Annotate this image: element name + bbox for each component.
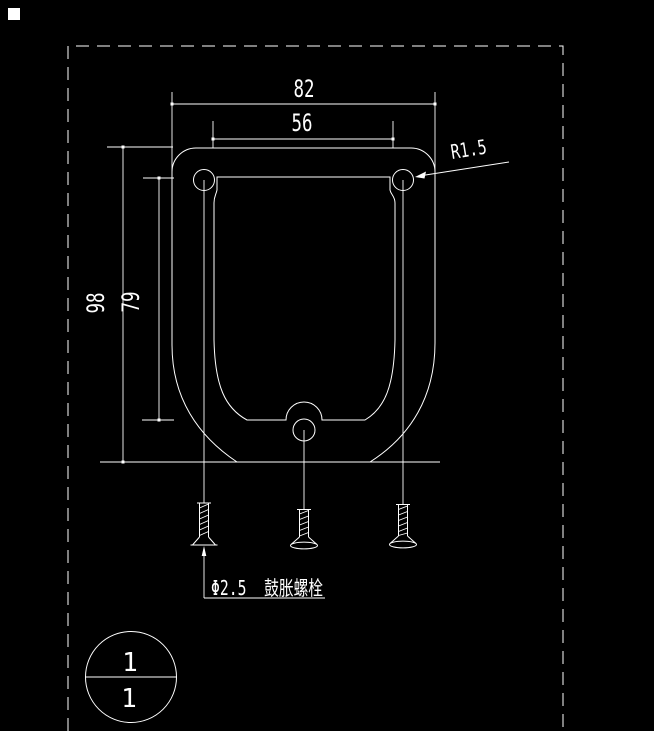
- radius-label-text: R1.5: [449, 135, 488, 164]
- sheet-dashed-border: [68, 46, 563, 731]
- plate-inner-contour: [214, 177, 395, 420]
- plate-outer-contour: [172, 148, 435, 462]
- cad-viewport: { "drawing": { "background_color": "#000…: [0, 0, 654, 731]
- bracket-plate-view: [172, 148, 435, 509]
- bolt-leader-callout: Φ2.5 鼓胀螺栓: [204, 556, 325, 600]
- leader-arrowhead: [415, 172, 426, 179]
- bolt-callout-text: Φ2.5 鼓胀螺栓: [211, 576, 323, 600]
- selection-grip-square: [8, 8, 20, 20]
- sheet-number-text: 1: [121, 684, 137, 714]
- screw-left: [191, 503, 218, 556]
- screws: [191, 503, 417, 556]
- screw-right: [390, 505, 417, 548]
- dim-82-text: 82: [294, 75, 315, 103]
- dim-56-text: 56: [292, 109, 313, 137]
- dim-79-text: 79: [117, 292, 145, 313]
- screw-middle: [291, 510, 318, 549]
- leader-arrowhead: [202, 546, 207, 556]
- detail-number-text: 1: [122, 648, 138, 678]
- dimension-inner-width: 56: [212, 109, 395, 148]
- cad-drawing-canvas[interactable]: 82 56 98 79 R1.5: [0, 0, 654, 731]
- dim-98-text: 98: [82, 293, 110, 314]
- dimension-inner-height: 79: [117, 177, 174, 422]
- detail-bubble: 1 1: [86, 632, 177, 723]
